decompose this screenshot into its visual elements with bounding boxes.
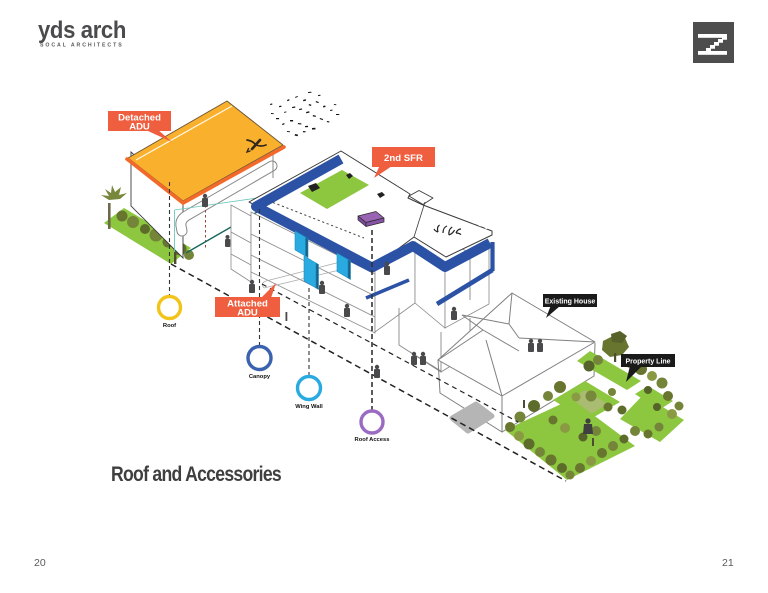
svg-text:Existing House: Existing House [545,299,596,306]
svg-text:Wing Wall: Wing Wall [295,404,323,410]
svg-text:Roof and Accessories: Roof and Accessories [111,463,281,486]
svg-text:Property Line: Property Line [625,359,670,366]
svg-text:ADU: ADU [237,308,258,319]
svg-text:SOCAL ARCHITECTS: SOCAL ARCHITECTS [40,43,124,49]
svg-text:ADU: ADU [129,122,150,133]
svg-text:20: 20 [34,557,46,569]
svg-text:Canopy: Canopy [249,374,271,380]
svg-text:21: 21 [722,557,734,569]
svg-text:yds arch: yds arch [38,17,126,44]
svg-text:Roof: Roof [163,323,176,329]
svg-text:Roof Access: Roof Access [355,437,390,443]
svg-text:2nd SFR: 2nd SFR [384,153,423,164]
